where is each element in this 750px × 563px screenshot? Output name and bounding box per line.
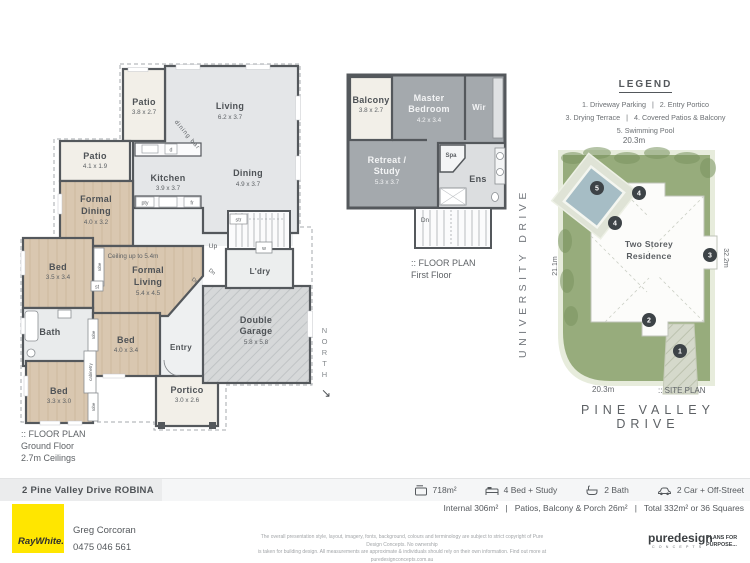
- puredesign-concepts-label: C O N C E P T S: [652, 545, 703, 549]
- ceiling-note: Ceiling up to 5.4m: [108, 253, 159, 260]
- patio-left-label: Patio: [83, 151, 107, 161]
- garage-label2: Garage: [240, 326, 273, 336]
- agent-phone: 0475 046 561: [73, 540, 136, 557]
- fr-label: fr: [190, 201, 193, 207]
- bed3-label: Bed: [50, 386, 68, 396]
- bath-label: Bath: [39, 327, 60, 337]
- balcony-dims: 3.8 x 2.7: [359, 107, 384, 114]
- disclaimer-line-2: is taken for building design. All measur…: [256, 549, 548, 563]
- bed2-dims: 4.0 x 3.4: [114, 347, 139, 354]
- marker-1: 1: [678, 349, 682, 356]
- retreat-label1: Retreat /: [368, 155, 407, 165]
- bed3-dims: 3.3 x 3.0: [47, 398, 72, 405]
- raywhite-logo-text: RayWhite.: [18, 536, 64, 547]
- dn-label: Dn: [421, 217, 430, 224]
- site-dim-right: 32.2m: [722, 248, 729, 268]
- residence-label1: Two Storey: [625, 239, 673, 249]
- bed1-dims: 3.5 x 3.4: [46, 274, 71, 281]
- street-pine-valley-drive: PINE VALLEY DRIVE: [548, 403, 748, 431]
- site-plan: Two Storey Residence 5 4 4 3 2 1 21.1m 3…: [545, 146, 747, 402]
- first-caption-marker: :: FLOOR PLAN: [411, 258, 476, 268]
- kitchen-dims: 3.9 x 3.7: [156, 185, 181, 192]
- w-label: w: [262, 246, 266, 252]
- patio-top-dims: 3.8 x 2.7: [132, 109, 157, 116]
- spa-label: Spa: [445, 153, 457, 159]
- marker-5: 5: [595, 186, 599, 193]
- agent-details: Greg Corcoran 0475 046 561: [73, 523, 136, 556]
- garage-dims: 5.8 x 5.8: [244, 339, 269, 346]
- formal-dining-dims: 4.0 x 3.2: [84, 219, 109, 226]
- master-dims: 4.2 x 3.4: [417, 117, 442, 124]
- balcony-label: Balcony: [352, 95, 389, 105]
- residence-label2: Residence: [626, 251, 671, 261]
- portico-dims: 3.0 x 2.6: [175, 397, 200, 404]
- ground-caption-line2: 2.7m Ceilings: [21, 453, 76, 463]
- site-dim-bottom: 20.3m: [592, 385, 614, 394]
- marker-3: 3: [708, 253, 712, 260]
- stat-baths: 2 Bath: [585, 485, 629, 496]
- bed-icon: [485, 485, 499, 496]
- site-dim-top: 20.3m: [545, 136, 723, 145]
- disclaimer: The overall presentation style, layout, …: [256, 534, 548, 563]
- robe-label: robe: [97, 262, 102, 271]
- bed1-label: Bed: [49, 262, 67, 272]
- retreat-label2: Study: [374, 166, 401, 176]
- first-caption-line1: First Floor: [411, 270, 452, 280]
- ground-caption-marker: :: FLOOR PLAN: [21, 429, 86, 439]
- robe-label: robe: [91, 330, 96, 339]
- formal-living-dims: 5.4 x 4.5: [136, 290, 161, 297]
- puredesign-tagline-1: PLANS FOR: [706, 535, 737, 542]
- first-floor-plan: Balcony 3.8 x 2.7 Master Bedroom 4.2 x 3…: [345, 60, 513, 292]
- kitchen-label: Kitchen: [150, 173, 185, 183]
- portico-label: Portico: [170, 385, 203, 395]
- wir-shelving: [493, 78, 503, 138]
- legend-line-1: 1. Driveway Parking | 2. Entry Portico: [543, 99, 748, 112]
- legend: LEGEND 1. Driveway Parking | 2. Entry Po…: [543, 74, 748, 138]
- legend-title: LEGEND: [619, 79, 673, 93]
- st-label: st: [95, 285, 100, 291]
- puredesign-tagline-2: PURPOSE...: [706, 542, 737, 549]
- stat-beds-label: 4 Bed + Study: [504, 485, 558, 495]
- areas-summary: Internal 306m² | Patios, Balcony & Porch…: [444, 503, 744, 513]
- ground-floor-plan: Patio 3.8 x 2.7 Living 6.2 x 3.7 Patio 4…: [8, 36, 340, 468]
- d-label: d: [170, 148, 173, 154]
- formal-dining-label2: Dining: [81, 206, 111, 216]
- retreat-dims: 5.3 x 3.7: [375, 179, 400, 186]
- robe-label: robe: [91, 402, 96, 411]
- site-dim-left: 21.1m: [552, 256, 559, 276]
- living-label: Living: [216, 101, 244, 111]
- marker-2: 2: [647, 318, 651, 325]
- stat-cars-label: 2 Car + Off-Street: [677, 485, 744, 495]
- bed2-label: Bed: [117, 335, 135, 345]
- stat-baths-label: 2 Bath: [604, 485, 629, 495]
- shower: [440, 188, 466, 205]
- pty-label: pty: [141, 201, 148, 207]
- disclaimer-line-1: The overall presentation style, layout, …: [256, 534, 548, 549]
- puredesign-tagline: PLANS FOR PURPOSE...: [706, 535, 737, 549]
- basin: [497, 169, 504, 176]
- stat-beds: 4 Bed + Study: [485, 485, 558, 496]
- wir-label: Wir: [472, 103, 486, 112]
- car-icon: [657, 485, 672, 496]
- room-patio-left: [60, 141, 130, 181]
- north-label: NORTH: [320, 326, 329, 381]
- formal-living-label2: Living: [134, 277, 162, 287]
- patio-left-dims: 4.1 x 1.9: [83, 163, 108, 170]
- dining-dims: 4.9 x 3.7: [236, 181, 261, 188]
- cabinetry-label: cabinetry: [88, 362, 93, 380]
- stat-land-area-label: 718m²: [433, 485, 457, 495]
- footer-band: 2 Pine Valley Drive ROBINA 718m² 4 Bed +…: [0, 478, 750, 501]
- agent-name: Greg Corcoran: [73, 523, 136, 540]
- garage-label1: Double: [240, 315, 272, 325]
- laundry-label: L'dry: [250, 267, 271, 276]
- marker-4: 4: [637, 191, 641, 198]
- marker-4: 4: [613, 221, 617, 228]
- first-floor-stairs: [415, 208, 491, 248]
- patio-top-label: Patio: [132, 97, 156, 107]
- dining-label: Dining: [233, 168, 263, 178]
- puredesign-logo: puredesign: [648, 532, 713, 544]
- portico-column: [158, 422, 165, 429]
- north-arrow-icon: ↘: [321, 386, 331, 400]
- basin: [497, 153, 504, 160]
- formal-living-label1: Formal: [132, 265, 164, 275]
- toilet: [492, 193, 499, 202]
- address-chip: 2 Pine Valley Drive ROBINA: [0, 479, 162, 501]
- property-address: 2 Pine Valley Drive ROBINA: [0, 485, 154, 496]
- ground-caption-line1: Ground Floor: [21, 441, 74, 451]
- str-label: str: [236, 218, 242, 224]
- master-label2: Bedroom: [408, 104, 450, 114]
- site-plan-caption: :: SITE PLAN: [658, 386, 706, 395]
- dn-label: Dn: [207, 268, 216, 277]
- land-area-icon: [414, 485, 428, 496]
- floorplan-flyer: Patio 3.8 x 2.7 Living 6.2 x 3.7 Patio 4…: [0, 0, 750, 563]
- master-label1: Master: [414, 93, 445, 103]
- bath-icon: [585, 485, 599, 496]
- property-stats-row: 718m² 4 Bed + Study 2 Bath: [414, 479, 744, 501]
- stat-land-area: 718m²: [414, 485, 457, 496]
- entry-label: Entry: [170, 343, 192, 352]
- street-university-drive: UNIVERSITY DRIVE: [517, 140, 529, 358]
- formal-dining-label1: Formal: [80, 194, 112, 204]
- portico-column: [209, 422, 216, 429]
- legend-line-2: 3. Drying Terrace | 4. Covered Patios & …: [543, 112, 748, 125]
- room-bed1: [23, 238, 93, 308]
- ens-label: Ens: [469, 174, 486, 184]
- living-dims: 6.2 x 3.7: [218, 114, 243, 121]
- raywhite-logo: RayWhite.: [12, 504, 64, 553]
- up-label: Up: [209, 243, 218, 250]
- stat-cars: 2 Car + Off-Street: [657, 485, 744, 496]
